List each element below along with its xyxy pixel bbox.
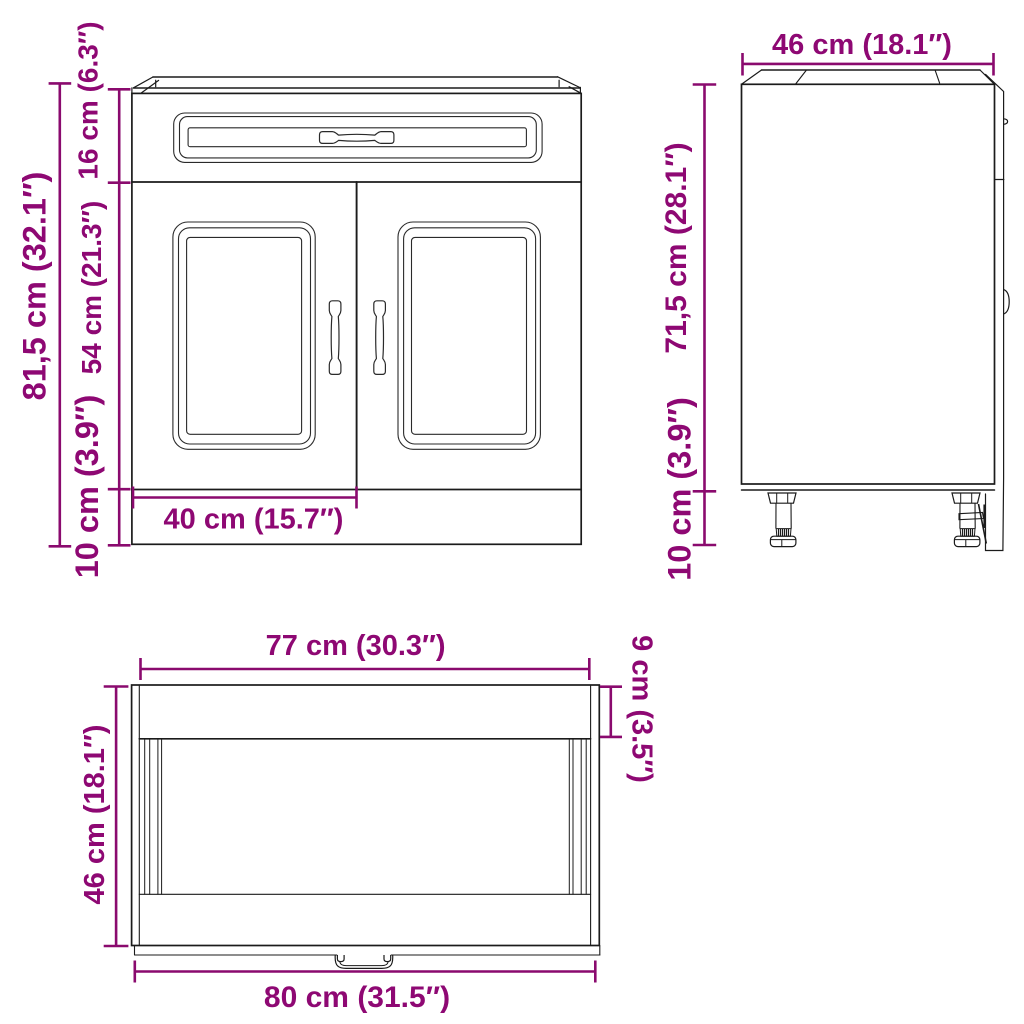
svg-text:10 cm (3.9″): 10 cm (3.9″) [661,397,697,581]
svg-text:16 cm (6.3″): 16 cm (6.3″) [73,21,104,179]
svg-text:46 cm (18.1″): 46 cm (18.1″) [772,29,952,61]
svg-text:77 cm (30.3″): 77 cm (30.3″) [266,630,446,662]
svg-text:71,5 cm (28.1″): 71,5 cm (28.1″) [660,142,693,353]
svg-text:10 cm (3.9″): 10 cm (3.9″) [69,395,105,579]
svg-text:54 cm (21.3″): 54 cm (21.3″) [76,201,107,375]
svg-text:81,5 cm (32.1″): 81,5 cm (32.1″) [17,172,53,401]
svg-text:80 cm (31.5″): 80 cm (31.5″) [264,981,450,1014]
svg-text:40 cm (15.7″): 40 cm (15.7″) [164,504,344,536]
svg-text:46 cm (18.1″): 46 cm (18.1″) [79,725,111,905]
svg-text:9 cm (3.5″): 9 cm (3.5″) [626,635,658,783]
